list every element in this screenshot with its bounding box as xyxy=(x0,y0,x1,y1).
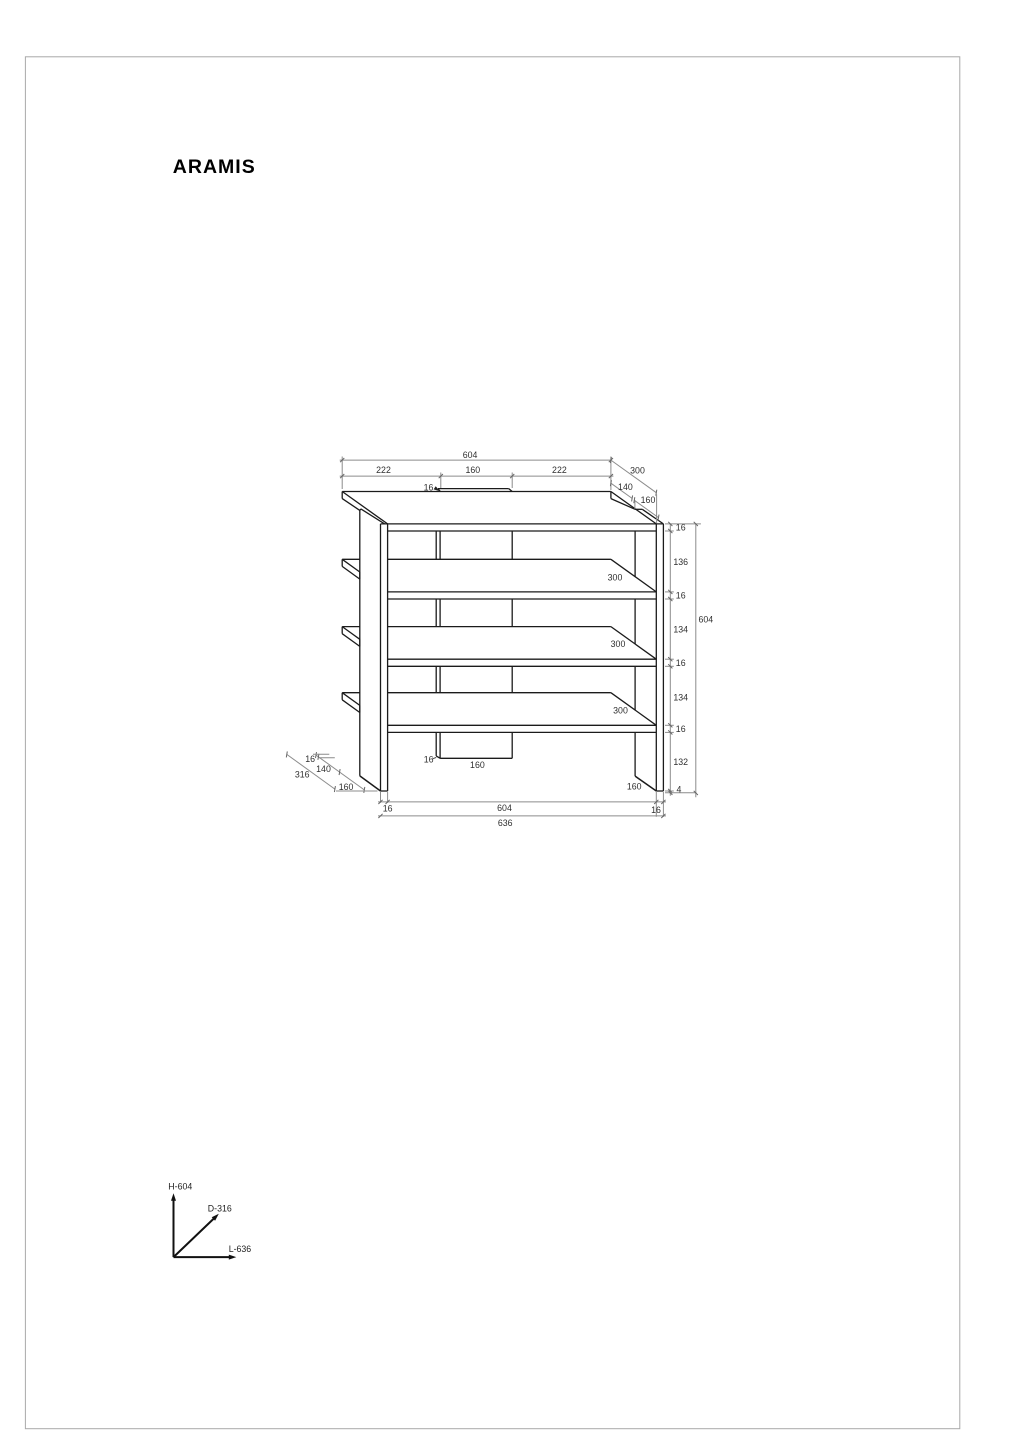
svg-text:16: 16 xyxy=(676,591,686,601)
svg-text:222: 222 xyxy=(376,465,391,475)
svg-text:D-316: D-316 xyxy=(208,1204,232,1214)
svg-text:H-604: H-604 xyxy=(168,1182,192,1192)
svg-text:16: 16 xyxy=(383,803,393,813)
svg-text:ARAMIS: ARAMIS xyxy=(173,156,256,178)
svg-text:222: 222 xyxy=(552,465,567,475)
svg-text:132: 132 xyxy=(673,757,688,767)
svg-text:16: 16 xyxy=(305,754,315,764)
svg-text:636: 636 xyxy=(498,818,513,828)
svg-text:140: 140 xyxy=(618,482,633,492)
svg-text:300: 300 xyxy=(611,639,626,649)
svg-text:160: 160 xyxy=(627,781,642,791)
svg-text:604: 604 xyxy=(463,450,478,460)
svg-text:4: 4 xyxy=(677,785,682,795)
svg-text:140: 140 xyxy=(316,764,331,774)
svg-text:134: 134 xyxy=(673,624,688,634)
svg-text:16: 16 xyxy=(424,482,434,492)
svg-text:16: 16 xyxy=(676,523,686,533)
svg-text:160: 160 xyxy=(465,465,480,475)
svg-text:604: 604 xyxy=(497,803,512,813)
svg-text:160: 160 xyxy=(339,782,354,792)
svg-text:16: 16 xyxy=(676,724,686,734)
svg-text:300: 300 xyxy=(630,465,645,475)
svg-text:160: 160 xyxy=(470,760,485,770)
svg-text:134: 134 xyxy=(673,693,688,703)
svg-text:16: 16 xyxy=(424,754,434,764)
svg-text:160: 160 xyxy=(641,495,656,505)
svg-text:136: 136 xyxy=(673,557,688,567)
svg-text:16: 16 xyxy=(676,658,686,668)
svg-text:316: 316 xyxy=(295,770,310,780)
svg-text:16: 16 xyxy=(651,805,661,815)
svg-text:L-636: L-636 xyxy=(229,1244,252,1254)
svg-text:300: 300 xyxy=(613,705,628,715)
svg-text:300: 300 xyxy=(608,573,623,583)
svg-text:604: 604 xyxy=(699,615,714,625)
